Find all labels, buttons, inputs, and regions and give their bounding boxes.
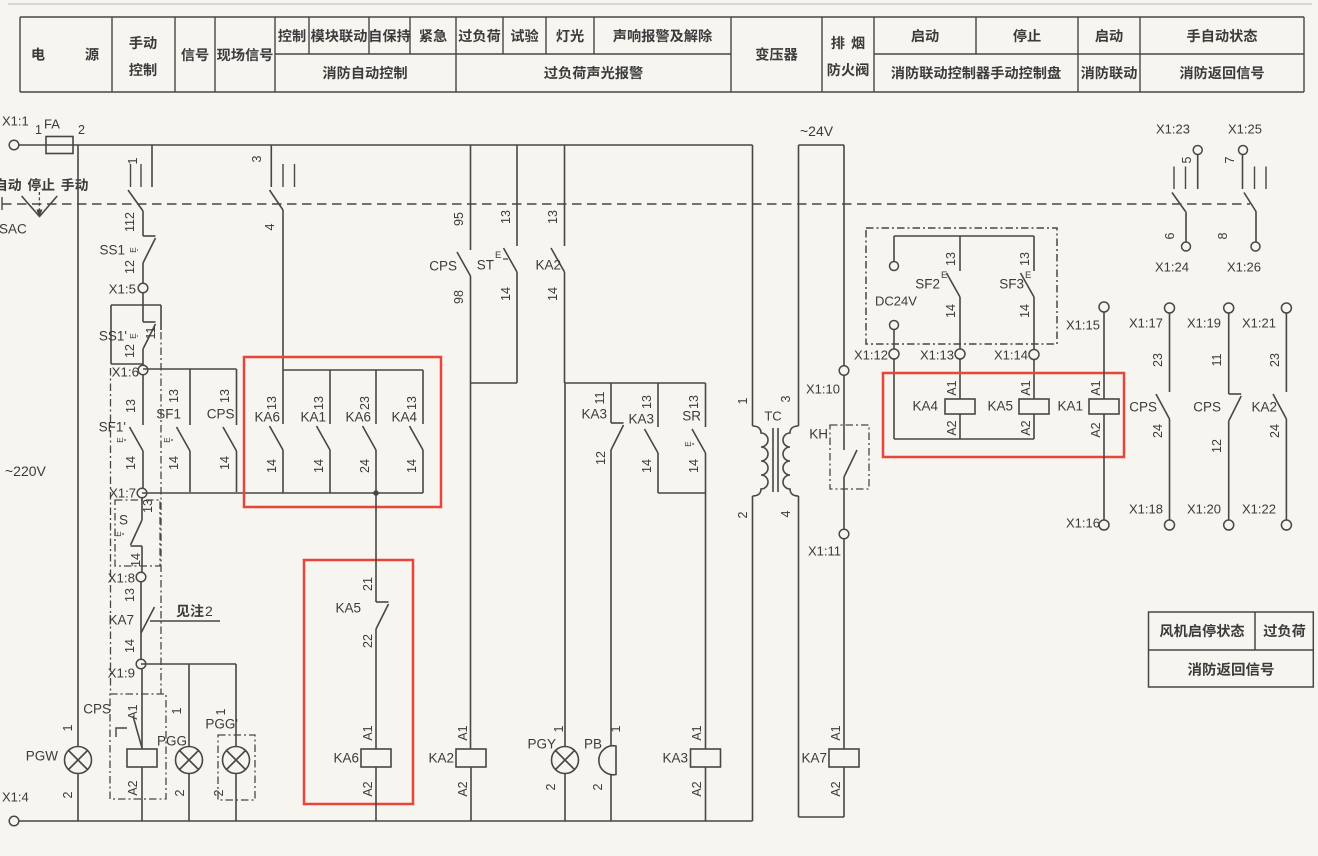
svg-text:13: 13: [167, 389, 181, 403]
svg-text:KA2: KA2: [535, 258, 561, 273]
svg-text:13: 13: [1018, 252, 1032, 266]
svg-text:ST: ST: [477, 258, 494, 273]
svg-text:X1:26: X1:26: [1227, 260, 1261, 275]
svg-text:X1:24: X1:24: [1155, 260, 1189, 275]
svg-text:A2: A2: [1019, 420, 1033, 435]
svg-text:X1:14: X1:14: [994, 348, 1028, 363]
svg-text:X1:22: X1:22: [1242, 502, 1276, 517]
svg-text:A2: A2: [829, 781, 843, 796]
svg-text:X1:23: X1:23: [1156, 122, 1190, 137]
svg-text:SF3: SF3: [999, 277, 1024, 292]
svg-text:E: E: [162, 437, 172, 443]
svg-text:4: 4: [263, 223, 277, 230]
svg-text:12: 12: [594, 451, 608, 465]
svg-text:E: E: [495, 250, 501, 261]
svg-text:X1:4: X1:4: [2, 790, 29, 805]
svg-text:2: 2: [591, 783, 605, 790]
svg-text:X1:21: X1:21: [1242, 316, 1276, 331]
svg-text:1: 1: [552, 725, 566, 732]
svg-text:KA6: KA6: [254, 410, 280, 425]
svg-text:SF1: SF1: [156, 407, 181, 422]
svg-text:PGG': PGG': [205, 717, 238, 732]
svg-text:X1:19: X1:19: [1187, 316, 1221, 331]
svg-text:24: 24: [1151, 424, 1165, 438]
svg-text:13: 13: [265, 396, 279, 410]
svg-text:X1:16: X1:16: [1066, 516, 1100, 531]
svg-text:14: 14: [944, 304, 958, 318]
svg-text:98: 98: [452, 290, 466, 304]
svg-text:5: 5: [1180, 156, 1194, 163]
svg-text:13: 13: [123, 588, 137, 602]
svg-text:A2: A2: [361, 781, 375, 796]
svg-text:X1:10: X1:10: [806, 382, 840, 397]
svg-text:E: E: [941, 270, 947, 281]
svg-text:KA2: KA2: [1251, 400, 1277, 415]
svg-text:X1:15: X1:15: [1066, 318, 1100, 333]
svg-text:13: 13: [687, 395, 701, 409]
svg-text:A1: A1: [829, 725, 843, 740]
svg-text:CPS: CPS: [83, 702, 111, 717]
svg-text:11: 11: [1210, 353, 1224, 366]
svg-text:14: 14: [405, 459, 419, 473]
svg-text:PGY: PGY: [527, 737, 556, 752]
svg-text:1: 1: [736, 397, 750, 404]
svg-text:X1:7: X1:7: [109, 486, 136, 501]
svg-text:SAC: SAC: [0, 222, 27, 237]
svg-text:11: 11: [593, 391, 607, 404]
svg-text:S: S: [119, 513, 128, 528]
svg-text:14: 14: [123, 639, 137, 653]
svg-text:~220V: ~220V: [5, 463, 47, 479]
svg-text:13: 13: [546, 210, 560, 224]
svg-text:CPS: CPS: [1193, 400, 1221, 415]
svg-text:CPS: CPS: [207, 407, 235, 422]
svg-text:12: 12: [1210, 439, 1224, 453]
svg-text:SS1: SS1: [99, 243, 125, 258]
svg-text:X1:6: X1:6: [112, 365, 139, 380]
svg-text:23: 23: [1268, 353, 1282, 367]
svg-text:14: 14: [546, 287, 560, 301]
svg-text:CPS: CPS: [429, 259, 457, 274]
svg-text:DC24V: DC24V: [875, 294, 917, 309]
svg-text:13: 13: [640, 395, 654, 409]
svg-text:23: 23: [358, 396, 372, 410]
svg-text:2: 2: [173, 789, 187, 796]
svg-text:1: 1: [170, 707, 184, 714]
svg-text:2: 2: [205, 603, 213, 619]
svg-text:A2: A2: [690, 781, 704, 796]
svg-text:KA2: KA2: [428, 751, 454, 766]
svg-text:A2: A2: [126, 780, 140, 795]
svg-text:2: 2: [212, 789, 226, 796]
svg-text:X1:9: X1:9: [108, 666, 135, 681]
svg-text:13: 13: [141, 499, 155, 513]
svg-text:X1:12: X1:12: [854, 348, 888, 363]
svg-text:4: 4: [779, 510, 793, 517]
svg-text:112: 112: [123, 212, 137, 232]
svg-text:SF2: SF2: [915, 277, 940, 292]
svg-text:A1: A1: [456, 725, 470, 740]
svg-text:8: 8: [1216, 232, 1230, 239]
svg-text:PB: PB: [584, 737, 602, 752]
svg-text:CPS: CPS: [1129, 400, 1157, 415]
svg-text:A2: A2: [456, 781, 470, 796]
svg-text:2: 2: [736, 511, 750, 518]
svg-text:E: E: [128, 333, 138, 339]
svg-text:14: 14: [1018, 304, 1032, 318]
svg-text:TC: TC: [764, 409, 781, 424]
svg-text:A2: A2: [945, 420, 959, 435]
svg-text:23: 23: [1151, 353, 1165, 367]
svg-text:22: 22: [361, 634, 375, 648]
svg-text:PGW: PGW: [26, 749, 59, 764]
svg-text:PGG: PGG: [157, 734, 187, 749]
svg-text:E: E: [115, 437, 125, 443]
svg-text:1: 1: [61, 724, 75, 731]
svg-text:13: 13: [218, 389, 232, 403]
svg-text:X1:8: X1:8: [108, 571, 135, 586]
svg-text:13: 13: [312, 396, 326, 410]
svg-text:13: 13: [405, 396, 419, 410]
svg-text:3: 3: [779, 395, 793, 402]
svg-text:3: 3: [250, 155, 264, 162]
svg-text:14: 14: [124, 456, 138, 470]
svg-text:KA6: KA6: [345, 410, 371, 425]
svg-text:SR: SR: [682, 409, 701, 424]
svg-text:13: 13: [499, 210, 513, 224]
svg-text:A1: A1: [1019, 380, 1033, 395]
svg-text:SF1': SF1': [99, 420, 126, 435]
svg-text:KA5: KA5: [987, 399, 1013, 414]
svg-text:KA6: KA6: [333, 751, 359, 766]
svg-text:14: 14: [265, 459, 279, 473]
svg-text:~24V: ~24V: [800, 123, 834, 139]
svg-text:24: 24: [358, 459, 372, 473]
svg-text:A1: A1: [361, 725, 375, 740]
svg-text:A1: A1: [945, 380, 959, 395]
svg-text:X1:5: X1:5: [109, 282, 136, 297]
svg-text:14: 14: [312, 459, 326, 473]
svg-text:E: E: [683, 441, 693, 447]
svg-text:FA: FA: [44, 117, 60, 132]
svg-text:X1:25: X1:25: [1228, 122, 1262, 137]
svg-text:21: 21: [361, 577, 375, 591]
svg-text:SS1': SS1': [99, 329, 127, 344]
svg-text:KA3: KA3: [628, 412, 654, 427]
svg-text:13: 13: [944, 252, 958, 266]
svg-text:1: 1: [609, 725, 623, 732]
svg-text:KH: KH: [809, 427, 828, 442]
svg-text:KA1: KA1: [300, 410, 326, 425]
svg-text:X1:13: X1:13: [920, 348, 954, 363]
svg-text:14: 14: [640, 459, 654, 473]
svg-text:KA7: KA7: [801, 751, 827, 766]
svg-text:A2: A2: [1089, 422, 1103, 437]
svg-text:KA4: KA4: [912, 399, 938, 414]
svg-text:A1: A1: [690, 725, 704, 740]
svg-text:KA5: KA5: [335, 601, 361, 616]
svg-text:14: 14: [687, 459, 701, 473]
svg-text:2: 2: [544, 783, 558, 790]
svg-text:KA7: KA7: [108, 613, 134, 628]
svg-text:2: 2: [61, 791, 75, 798]
svg-text:KA4: KA4: [391, 410, 417, 425]
svg-text:X1:17: X1:17: [1129, 316, 1163, 331]
svg-text:KA3: KA3: [581, 407, 607, 422]
svg-text:E: E: [128, 247, 138, 253]
svg-text:7: 7: [1223, 156, 1237, 163]
svg-text:E: E: [1025, 270, 1031, 281]
svg-text:24: 24: [1268, 424, 1282, 438]
svg-text:6: 6: [1163, 232, 1177, 239]
svg-text:11: 11: [144, 326, 158, 339]
svg-text:X1:11: X1:11: [808, 544, 841, 559]
svg-text:X1:18: X1:18: [1129, 502, 1163, 517]
svg-text:95: 95: [452, 212, 466, 226]
svg-text:A1: A1: [1089, 380, 1103, 395]
svg-text:14: 14: [167, 456, 181, 470]
svg-text:1: 1: [35, 123, 42, 137]
svg-text:KA3: KA3: [662, 751, 688, 766]
svg-text:12: 12: [123, 344, 137, 358]
svg-text:1: 1: [214, 708, 228, 715]
svg-text:12: 12: [123, 260, 137, 274]
svg-text:KA1: KA1: [1057, 399, 1083, 414]
svg-text:1: 1: [126, 157, 140, 164]
svg-text:14: 14: [218, 456, 232, 470]
svg-text:2: 2: [78, 123, 85, 137]
svg-text:13: 13: [124, 399, 138, 413]
svg-text:14: 14: [129, 553, 143, 567]
svg-text:14: 14: [499, 287, 513, 301]
svg-text:X1:20: X1:20: [1187, 502, 1221, 517]
svg-text:X1:1: X1:1: [2, 114, 29, 129]
